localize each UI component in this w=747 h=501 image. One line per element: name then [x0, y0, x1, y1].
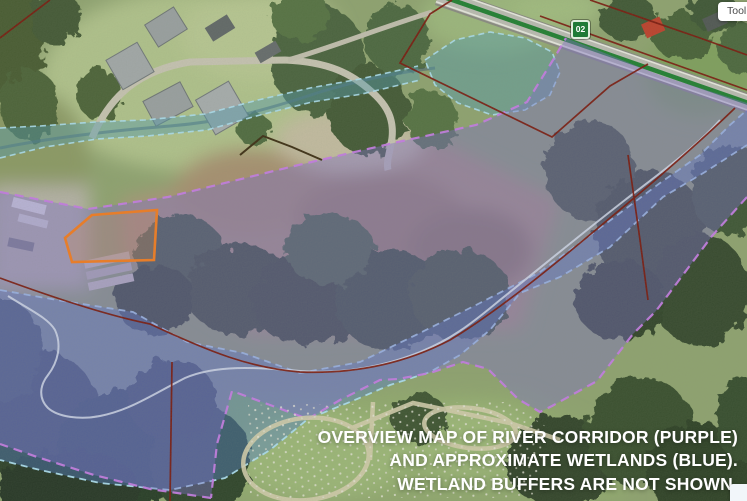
tool-button[interactable]: Tool: [718, 2, 747, 21]
caption-line-2: AND APPROXIMATE WETLANDS (BLUE).: [318, 449, 738, 473]
route-2-shield-icon: 02: [571, 20, 590, 39]
corner-control-button[interactable]: [730, 484, 747, 501]
map-canvas[interactable]: 02 OVERVIEW MAP OF RIVER CORRIDOR (PURPL…: [0, 0, 747, 501]
map-caption: OVERVIEW MAP OF RIVER CORRIDOR (PURPLE) …: [318, 426, 738, 497]
caption-line-1: OVERVIEW MAP OF RIVER CORRIDOR (PURPLE): [318, 426, 738, 450]
caption-line-3: WETLAND BUFFERS ARE NOT SHOWN.: [318, 473, 738, 497]
